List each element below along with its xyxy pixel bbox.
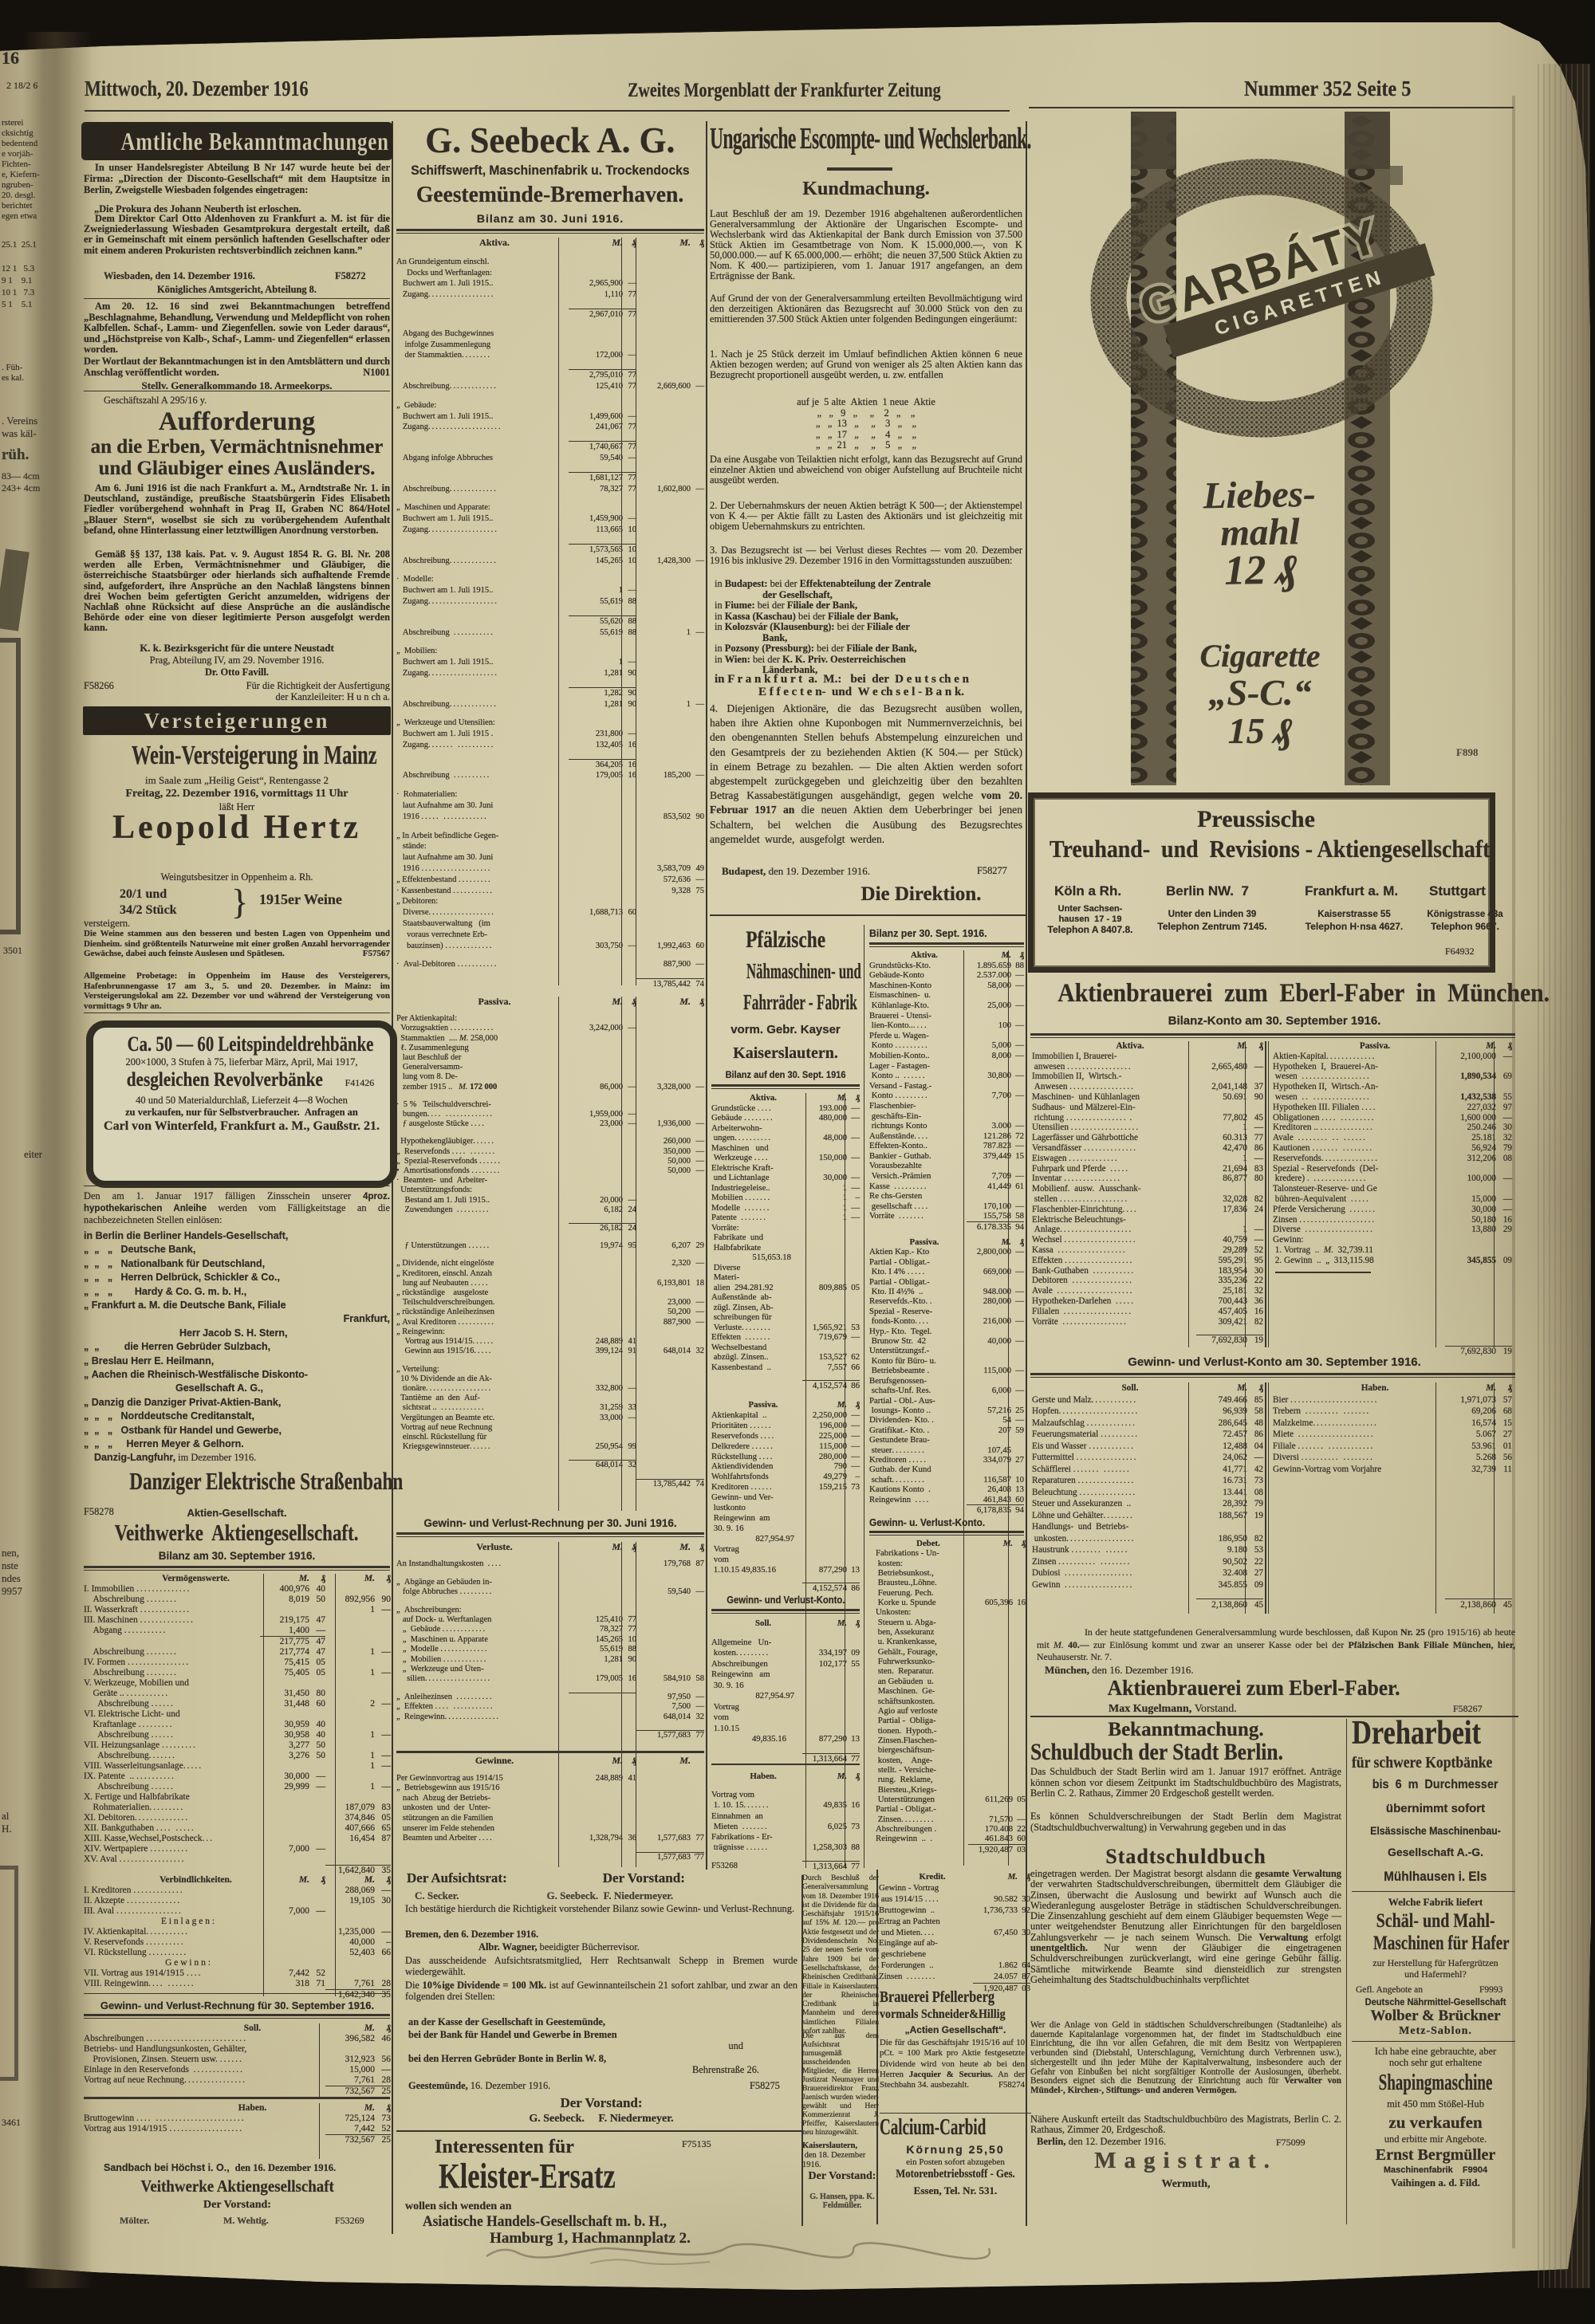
svg-text:F898: F898 [1456, 746, 1479, 758]
